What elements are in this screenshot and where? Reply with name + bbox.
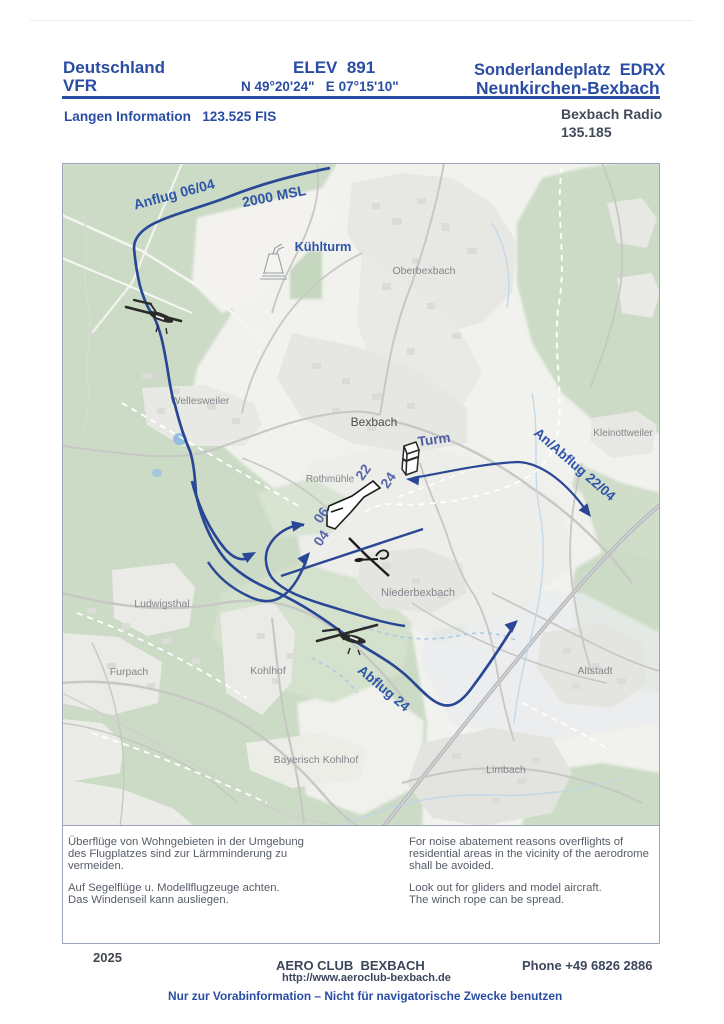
svg-text:Furpach: Furpach [110,666,149,678]
svg-text:Kohlhof: Kohlhof [250,665,286,677]
svg-text:Bexbach: Bexbach [351,415,398,429]
svg-text:Kühlturm: Kühlturm [295,239,352,254]
svg-text:Niederbexbach: Niederbexbach [381,587,455,599]
svg-text:Altstadt: Altstadt [577,665,612,677]
svg-text:Rothmühle: Rothmühle [306,474,355,485]
svg-text:Bayerisch Kohlhof: Bayerisch Kohlhof [274,754,359,766]
svg-text:Ludwigsthal: Ludwigsthal [134,598,189,610]
svg-text:Kleinottweiler: Kleinottweiler [593,428,653,439]
svg-text:Limbach: Limbach [486,764,526,776]
svg-text:Wellesweiler: Wellesweiler [171,395,230,407]
svg-text:Oberbexbach: Oberbexbach [392,265,455,277]
